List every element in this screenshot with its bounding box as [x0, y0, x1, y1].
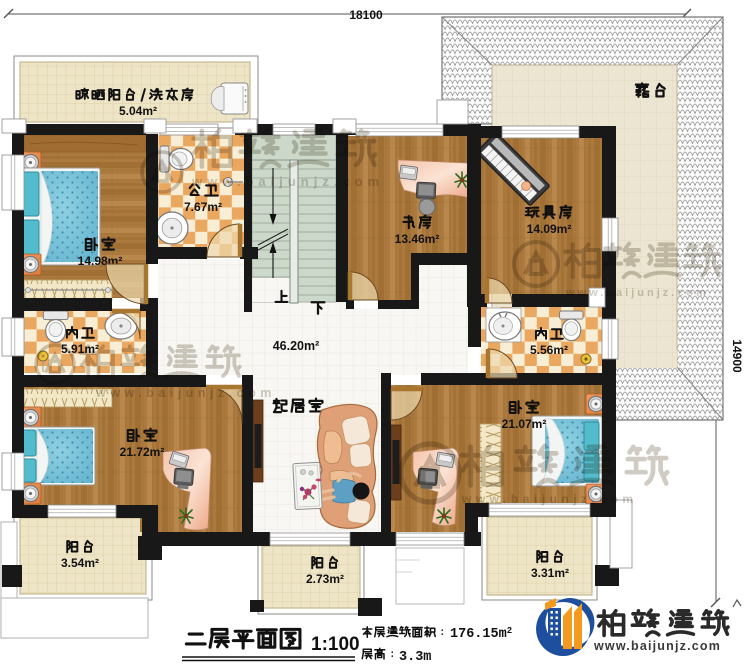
svg-text:www.baijunjz.com: www.baijunjz.com: [461, 492, 638, 506]
svg-text:www.baijunjz.com: www.baijunjz.com: [593, 639, 721, 653]
svg-text:3.54m²: 3.54m²: [61, 556, 99, 570]
svg-text:7.67m²: 7.67m²: [184, 200, 222, 214]
svg-text:3.3m: 3.3m: [399, 650, 431, 665]
svg-text:www.baijunjz.com: www.baijunjz.com: [95, 386, 276, 400]
svg-text:5.04m²: 5.04m²: [119, 104, 157, 118]
svg-text:18100: 18100: [349, 8, 383, 22]
svg-text:21.07m²: 21.07m²: [502, 417, 547, 431]
svg-text:14.09m²: 14.09m²: [527, 222, 572, 236]
svg-text:5.56m²: 5.56m²: [530, 343, 568, 357]
svg-text:3.31m²: 3.31m²: [531, 566, 569, 580]
svg-text:21.72m²: 21.72m²: [120, 445, 165, 459]
svg-text:13.46m²: 13.46m²: [395, 232, 440, 246]
svg-text:1:100: 1:100: [311, 634, 360, 655]
svg-text:46.20m²: 46.20m²: [273, 339, 320, 353]
svg-text:www.baijunjz.com: www.baijunjz.com: [565, 287, 709, 299]
svg-text:176.15m2: 176.15m2: [450, 626, 512, 642]
svg-text:2.73m²: 2.73m²: [306, 572, 344, 586]
svg-text:14900: 14900: [730, 339, 744, 373]
svg-text:www.baijunjz.com: www.baijunjz.com: [191, 174, 384, 189]
